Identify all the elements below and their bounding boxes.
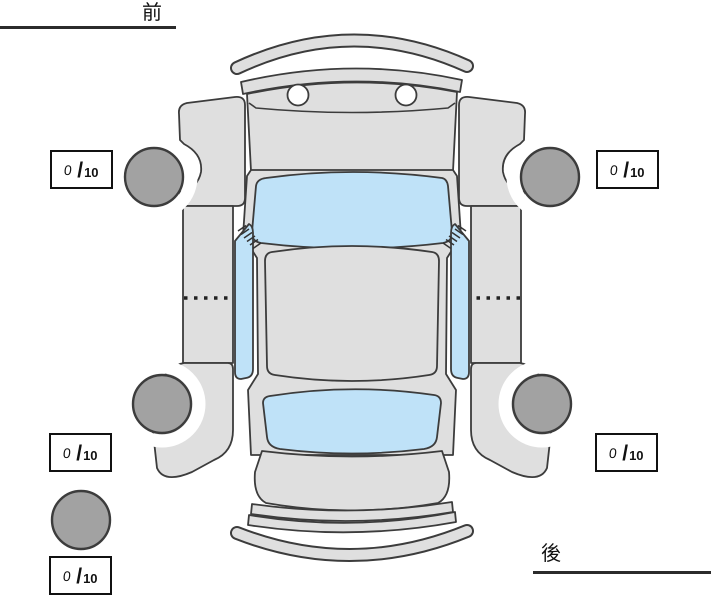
- car-top-view-diagram: [0, 0, 711, 600]
- score-max: 10: [630, 166, 644, 179]
- tread-score-spare: 0/10: [49, 556, 112, 595]
- front-label: 前: [142, 2, 162, 24]
- score-slash: /: [76, 443, 82, 464]
- score-value: 0: [63, 569, 72, 583]
- windshield: [252, 172, 452, 249]
- tread-score-rear-right: 0/10: [595, 433, 658, 472]
- score-max: 10: [83, 572, 97, 585]
- score-slash: /: [622, 443, 628, 464]
- trunk: [255, 451, 450, 511]
- score-value: 0: [63, 446, 72, 460]
- score-max: 10: [84, 166, 98, 179]
- score-value: 0: [64, 163, 73, 177]
- headlight-right-icon: [396, 85, 417, 106]
- score-slash: /: [77, 160, 83, 181]
- rear-underline: [533, 571, 711, 574]
- score-max: 10: [83, 449, 97, 462]
- tread-score-front-right: 0/10: [596, 150, 659, 189]
- score-max: 10: [629, 449, 643, 462]
- headlight-left-icon: [288, 85, 309, 106]
- rear-window: [263, 389, 441, 453]
- score-value: 0: [609, 446, 618, 460]
- tread-score-rear-left: 0/10: [49, 433, 112, 472]
- front-underline: [0, 26, 176, 29]
- rear-label: 後: [541, 543, 561, 565]
- front-bumper: [237, 40, 467, 68]
- score-slash: /: [623, 160, 629, 181]
- door-panel: [183, 206, 233, 363]
- door-window-glass: [235, 224, 253, 379]
- tread-score-front-left: 0/10: [50, 150, 113, 189]
- car-condition-diagram: 前 後 0/10 0/10 0/10 0/10 0/10: [0, 0, 711, 600]
- tire-spare-icon: [52, 491, 110, 549]
- tire-rear-right-icon: [513, 375, 571, 433]
- tire-rear-left-icon: [133, 375, 191, 433]
- roof: [265, 246, 439, 381]
- tire-front-left-icon: [125, 148, 183, 206]
- tire-front-right-icon: [521, 148, 579, 206]
- score-slash: /: [76, 566, 82, 587]
- score-value: 0: [610, 163, 619, 177]
- hood: [247, 82, 457, 171]
